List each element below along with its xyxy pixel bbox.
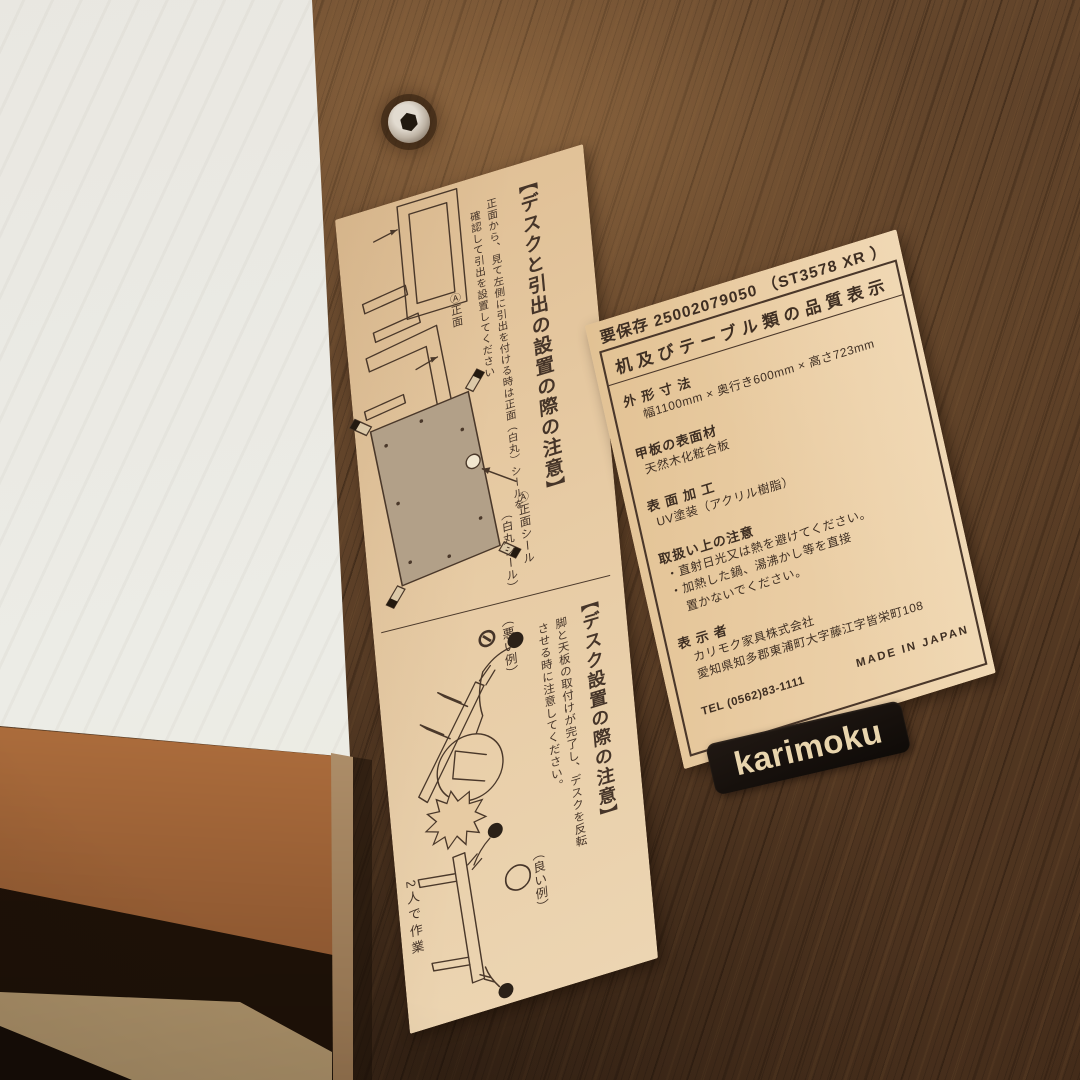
hex-screw-icon — [388, 101, 430, 143]
left-label-title-2: 【デスク設置の際の注意】 — [579, 590, 618, 828]
photo-desk-underside: 【デスクと引出の設置の際の注意】 正面から、見て左側に引出を付ける時は正面（白丸… — [0, 0, 1080, 1080]
hex-socket — [398, 111, 420, 133]
tel-number: TEL (0562)83-1111 — [700, 674, 806, 718]
